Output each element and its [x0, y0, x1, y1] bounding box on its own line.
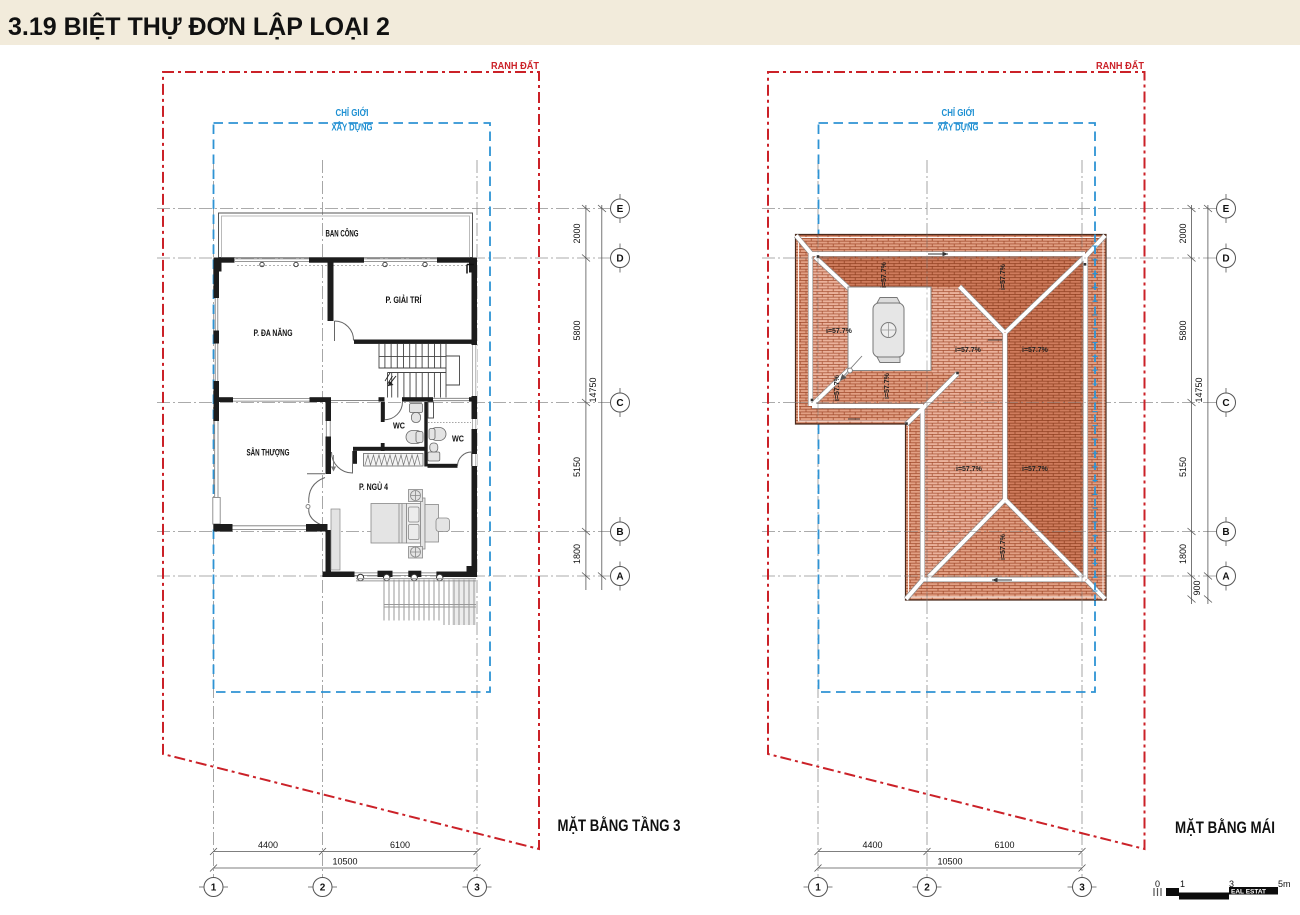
svg-text:RANH ĐẤT: RANH ĐẤT	[1096, 59, 1144, 72]
svg-text:5m: 5m	[1278, 879, 1291, 889]
svg-text:B: B	[1222, 527, 1229, 538]
svg-text:2000: 2000	[572, 223, 582, 243]
svg-text:XÂY DỰNG: XÂY DỰNG	[332, 121, 373, 134]
svg-text:1: 1	[1180, 879, 1185, 889]
svg-text:5150: 5150	[572, 457, 582, 477]
svg-text:1800: 1800	[572, 544, 582, 564]
svg-text:0: 0	[1155, 879, 1160, 889]
svg-text:C: C	[1222, 398, 1229, 409]
svg-text:CHỈ GIỚI: CHỈ GIỚI	[336, 106, 369, 119]
svg-text:1: 1	[815, 883, 821, 894]
svg-text:6100: 6100	[994, 840, 1014, 850]
svg-text:D: D	[1222, 254, 1229, 265]
svg-text:SÂN THƯỢNG: SÂN THƯỢNG	[247, 447, 290, 458]
svg-text:BAN CÔNG: BAN CÔNG	[326, 228, 359, 239]
svg-text:XÂY DỰNG: XÂY DỰNG	[938, 121, 979, 134]
svg-text:E: E	[1223, 204, 1230, 215]
svg-text:2000: 2000	[1178, 223, 1188, 243]
svg-text:5150: 5150	[1178, 457, 1188, 477]
svg-text:C: C	[616, 398, 623, 409]
svg-text:i=57.7%: i=57.7%	[955, 347, 982, 354]
svg-text:10500: 10500	[937, 857, 962, 867]
svg-text:A: A	[1222, 572, 1229, 583]
svg-text:14750: 14750	[588, 377, 598, 402]
svg-text:WC: WC	[452, 434, 464, 444]
svg-text:A: A	[616, 572, 623, 583]
svg-text:i=57.7%: i=57.7%	[826, 328, 853, 335]
svg-text:MẶT BẰNG TẦNG 3: MẶT BẰNG TẦNG 3	[558, 816, 681, 835]
svg-text:4400: 4400	[258, 840, 278, 850]
svg-text:EAL ESTAT: EAL ESTAT	[1231, 889, 1266, 896]
svg-text:P. GIẢI TRÍ: P. GIẢI TRÍ	[386, 294, 422, 305]
svg-text:6100: 6100	[390, 840, 410, 850]
svg-text:E: E	[617, 204, 624, 215]
svg-text:14750: 14750	[1194, 377, 1204, 402]
svg-text:WC: WC	[393, 421, 405, 431]
svg-text:i=57.7%: i=57.7%	[1022, 347, 1049, 354]
svg-text:P. NGỦ 4: P. NGỦ 4	[359, 481, 388, 492]
svg-text:5800: 5800	[1178, 320, 1188, 340]
svg-text:1800: 1800	[1178, 544, 1188, 564]
svg-text:B: B	[616, 527, 623, 538]
svg-text:i=57.7%: i=57.7%	[956, 466, 983, 473]
svg-text:i=57.7%: i=57.7%	[881, 261, 888, 288]
svg-text:MẶT BẰNG MÁI: MẶT BẰNG MÁI	[1175, 818, 1275, 837]
svg-text:CHỈ GIỚI: CHỈ GIỚI	[942, 106, 975, 119]
svg-text:3: 3	[1079, 883, 1085, 894]
svg-text:i=57.7%: i=57.7%	[834, 374, 841, 401]
svg-text:RANH ĐẤT: RANH ĐẤT	[491, 59, 539, 72]
svg-text:10500: 10500	[332, 857, 357, 867]
svg-text:i=57.7%: i=57.7%	[884, 372, 891, 399]
svg-text:900: 900	[1192, 580, 1202, 595]
svg-text:4400: 4400	[862, 840, 882, 850]
svg-text:P. ĐA NĂNG: P. ĐA NĂNG	[254, 328, 293, 338]
svg-text:i=57.7%: i=57.7%	[1000, 533, 1007, 560]
svg-text:3: 3	[474, 883, 480, 894]
svg-text:2: 2	[924, 883, 930, 894]
svg-text:1: 1	[211, 883, 217, 894]
svg-text:2: 2	[320, 883, 326, 894]
svg-text:D: D	[616, 254, 623, 265]
svg-text:i=57.7%: i=57.7%	[1000, 263, 1007, 290]
svg-text:i=57.7%: i=57.7%	[1022, 466, 1049, 473]
svg-text:5800: 5800	[572, 320, 582, 340]
